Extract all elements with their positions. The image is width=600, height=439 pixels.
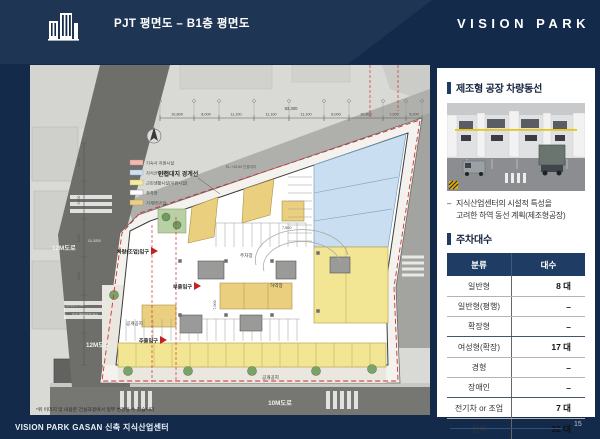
legend-swatch <box>130 200 143 205</box>
dim-7000: 7,000 <box>213 300 217 310</box>
footer-project-title: VISION PARK GASAN 신축 지식산업센터 <box>15 422 169 433</box>
parking-area-label: 주차장 <box>240 252 253 259</box>
table-row: 확장형 – <box>447 317 585 337</box>
parking-count-table: 분류 대수 일반형 8 대 일반형(평행) – 확장형 – 여성형(확장) 17… <box>447 253 585 439</box>
factory-circulation-image <box>447 103 585 191</box>
truck <box>539 145 565 176</box>
section-title: 제조형 공장 차량동선 <box>456 80 542 95</box>
legend-swatch <box>130 180 143 185</box>
section-title: 주차대수 <box>456 231 492 246</box>
row-category: 일반형 <box>447 276 512 297</box>
dim-label: 8,000 <box>77 158 81 167</box>
road-label-12m-b: 12M도로 <box>86 341 110 349</box>
row-category: 일반형(평행) <box>447 297 512 317</box>
open-space-label-left: 공개공지 <box>126 320 143 327</box>
table-row: 장애인 – <box>447 378 585 398</box>
page-title: PJT 평면도 – B1층 평면도 <box>114 15 250 31</box>
gl-label: GL-5200 <box>88 239 101 243</box>
vehicle-entry-label: 차량(조업)입구 <box>117 248 149 256</box>
site-plan-drawing: 83,300 10,800 8,000 11,100 11,100 11,100… <box>30 65 430 415</box>
dim-label: 8,000 <box>331 113 341 117</box>
sub-entry-label: 부출입구 <box>173 283 192 291</box>
legend-swatch <box>130 160 143 165</box>
dim-label: 8,600 <box>77 196 81 205</box>
dim-total-label: 83,300 <box>285 106 298 111</box>
row-category: 경형 <box>447 358 512 378</box>
header-diagonal-band <box>0 0 600 64</box>
row-category: 장애인 <box>447 378 512 398</box>
col-header-count: 대수 <box>512 253 586 276</box>
row-count: – <box>512 317 586 337</box>
row-count: – <box>512 358 586 378</box>
road-label-12m-a: 12M도로 <box>52 244 76 252</box>
page-number: 15 <box>574 421 582 428</box>
slide: PJT 평면도 – B1층 평면도 VISION PARK <box>0 0 600 439</box>
row-count: 8 대 <box>512 276 586 297</box>
row-count: 17 대 <box>512 337 586 358</box>
dim-label: 11,100 <box>265 113 276 117</box>
row-count: – <box>512 378 586 398</box>
legend-label: 기계/전기실 <box>146 200 167 207</box>
road-label-10m: 10M도로 <box>268 399 292 407</box>
brand-logo: VISION PARK <box>457 16 590 31</box>
table-row: 경형 – <box>447 358 585 378</box>
row-category: 전기차 or 조업 <box>447 398 512 419</box>
heading-accent-bar <box>447 82 451 94</box>
dim-label: 10,800 <box>171 113 183 117</box>
dim-label: 8,000 <box>77 272 81 281</box>
table-row: 여성형(확장) 17 대 <box>447 337 585 358</box>
el-label: EL.+15.50 인접대지 <box>226 164 256 169</box>
legend-swatch <box>130 170 143 175</box>
bullet-line-1: 지식산업센터의 시설적 특성을 <box>456 199 552 208</box>
dim-7500: 7,500 <box>282 226 292 230</box>
table-header-row: 분류 대수 <box>447 253 585 276</box>
col-header-category: 분류 <box>447 253 512 276</box>
bullet-dash: – <box>447 198 451 210</box>
legend-swatch <box>130 190 143 195</box>
dim-label: 8,600 <box>77 234 81 243</box>
row-count: – <box>512 297 586 317</box>
legend-label: 근린생활시설(지원시설) <box>146 180 188 187</box>
courtyard-green <box>158 209 186 233</box>
building-icon <box>46 10 80 42</box>
disclaimer-note: *위 이미지 및 내용은 건설과정에서 일부 변경될 수 있습니다 <box>36 406 155 413</box>
legend-label: 주차장 <box>146 190 158 197</box>
table-row: 일반형(평행) – <box>447 297 585 317</box>
heading-accent-bar <box>447 233 451 245</box>
road-note-2: 도로 확보구간(2M) <box>72 312 98 317</box>
table-row: 전기차 or 조업 7 대 <box>447 398 585 419</box>
row-count: 7 대 <box>512 398 586 419</box>
row-category: 여성형(확장) <box>447 337 512 358</box>
section-parking-heading: 주차대수 <box>447 231 585 246</box>
footer-rule <box>450 428 562 429</box>
legend-label: 기숙사 지원시설 <box>146 160 174 167</box>
dim-label: 7,200 <box>389 113 399 117</box>
hazard-stripe-icon <box>449 181 458 189</box>
dim-label: 5,200 <box>409 113 419 117</box>
main-entry-label: 주출입구 <box>139 337 158 345</box>
loading-dock-label: 하역장 <box>270 282 283 289</box>
dim-label: 8,000 <box>201 113 211 117</box>
side-info-card: 제조형 공장 차량동선 <box>437 68 595 417</box>
floor-plan-panel: 83,300 10,800 8,000 11,100 11,100 11,100… <box>30 65 430 415</box>
boundary-label: 인접대지 경계선 <box>158 170 198 178</box>
section-circulation-heading: 제조형 공장 차량동선 <box>447 80 585 95</box>
open-space-label-bottom: 공개공지 <box>262 374 279 381</box>
bullet-line-2: 고려한 하역 동선 계획(제조형공장) <box>456 210 585 222</box>
yellow-flow-line <box>455 129 577 131</box>
row-category: 확장형 <box>447 317 512 337</box>
dim-label: 10,800 <box>360 113 372 117</box>
dim-label: 11,100 <box>230 113 241 117</box>
circulation-bullet: – 지식산업센터의 시설적 특성을 고려한 하역 동선 계획(제조형공장) <box>447 198 585 222</box>
dim-label: 11,100 <box>300 113 311 117</box>
table-row: 일반형 8 대 <box>447 276 585 297</box>
road-note-1: 공개공지 3M <box>66 302 84 307</box>
